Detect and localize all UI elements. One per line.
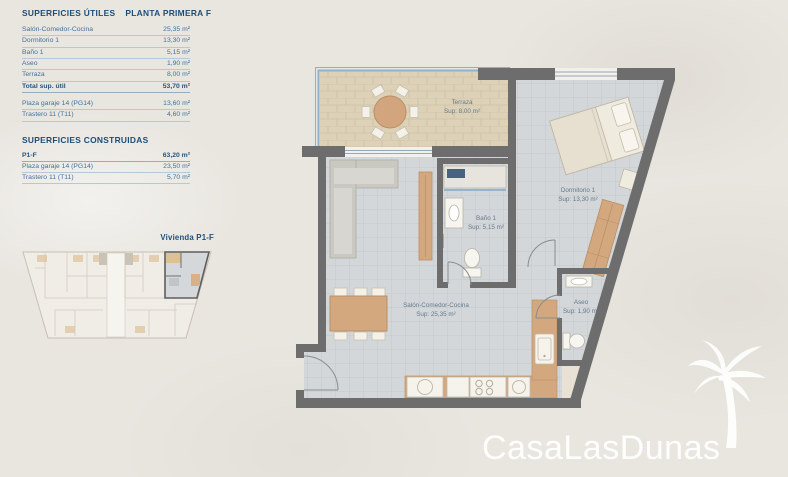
sideboard-icon: [419, 172, 432, 260]
room-label-aseo: Aseo: [574, 299, 589, 306]
dining-table-icon: [330, 288, 387, 340]
window-terrace-slider: [345, 147, 432, 157]
room-sup-aseo: Sup: 1,90 m²: [563, 308, 599, 315]
logo-text: CasaLasDunas: [482, 429, 720, 468]
room-sup-dormitorio: Sup: 13,30 m²: [558, 196, 598, 203]
window-bedroom: [555, 68, 617, 80]
room-sup-salon: Sup: 25,35 m²: [416, 311, 456, 318]
room-label-salon: Salón-Comedor-Cocina: [403, 302, 469, 309]
floor-plan: Terraza Sup: 8,00 m² Dormitorio 1 Sup: 1…: [0, 0, 788, 477]
room-label-bano: Baño 1: [476, 215, 496, 222]
room-sup-terraza: Sup: 8,00 m²: [444, 108, 480, 115]
room-label-dormitorio: Dormitorio 1: [561, 187, 596, 194]
room-label-terraza: Terraza: [452, 99, 473, 106]
room-sup-bano: Sup: 5,15 m²: [468, 224, 504, 231]
brochure-page: SUPERFICIES ÚTILES PLANTA PRIMERA F Saló…: [0, 0, 788, 477]
